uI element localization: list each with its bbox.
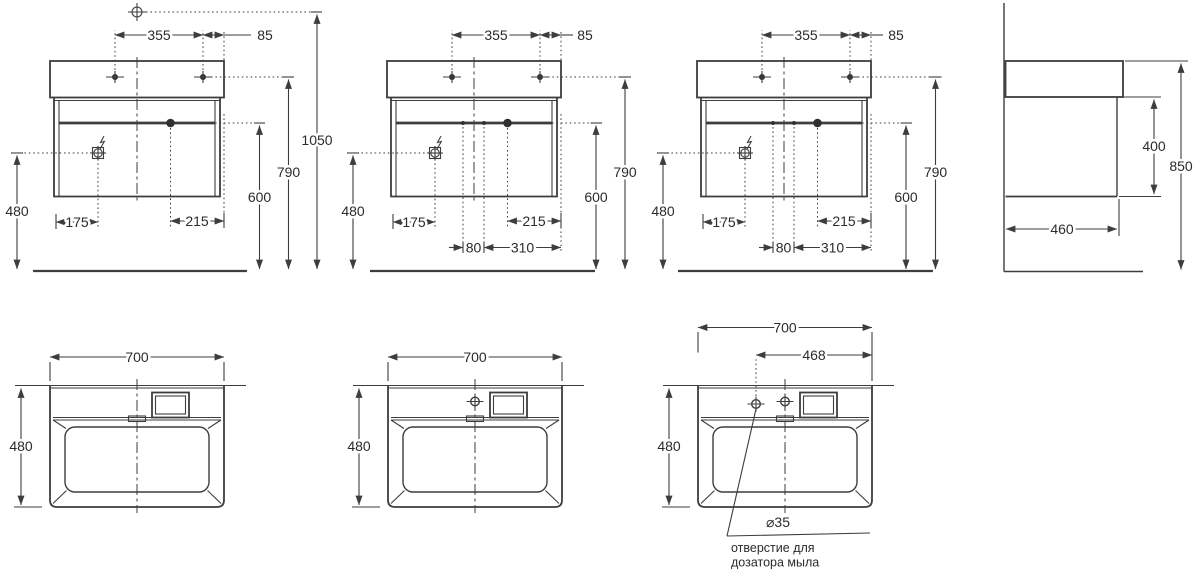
dim-label-drain-offset: 215 <box>832 213 856 229</box>
dim-label-faucet-span: 355 <box>794 27 818 43</box>
dim-label-outlet-height: 480 <box>5 203 29 219</box>
soap-note-line-1: отверстие для <box>731 541 815 555</box>
dim-label-drain-offset: 215 <box>185 213 209 229</box>
dim-label-faucet-height: 790 <box>613 164 637 180</box>
dim-label-hole-to-edge: 310 <box>511 240 535 256</box>
top-view-3: 700 468 480 ⌀35 отверстие для дозатора м… <box>657 320 894 569</box>
soap-note-line-2: дозатора мыла <box>731 556 819 569</box>
front-view-3: 355 85 790 600 480 175 215 80 310 <box>651 27 947 271</box>
dim-label-depth: 480 <box>347 438 371 454</box>
extra-hole-dot <box>482 121 486 125</box>
dim-label-width: 700 <box>773 320 797 336</box>
dim-label-faucet-span: 355 <box>484 27 508 43</box>
vanity-dimension-drawing: 355 85 1050 790 600 480 175 215 355 <box>0 0 1194 569</box>
dim-label-drawer-line-height: 600 <box>894 189 918 205</box>
front-view-2: 355 85 790 600 480 175 215 80 310 <box>341 27 637 271</box>
dim-label-hole-span: 80 <box>466 240 482 256</box>
side-view: 400 850 460 <box>1004 3 1193 272</box>
dim-label-faucet-to-edge: 85 <box>888 27 904 43</box>
tap-hole-icon <box>467 394 484 409</box>
dim-label-faucet-to-edge: 85 <box>257 27 273 43</box>
dim-label-faucet-to-edge: 85 <box>577 27 593 43</box>
dim-label-depth: 460 <box>1050 221 1074 237</box>
dim-label-width: 700 <box>125 349 149 365</box>
dim-label-hole-to-edge: 310 <box>821 240 845 256</box>
dim-label-soap-hole-to-edge: 468 <box>802 347 826 363</box>
dim-label-hole-span: 80 <box>776 240 792 256</box>
dim-label-faucet-height: 790 <box>924 164 948 180</box>
datum-point-icon <box>128 3 146 21</box>
front-view-1: 355 85 1050 790 600 480 175 215 <box>5 3 332 271</box>
dim-label-soap-hole-diameter: ⌀35 <box>766 514 790 530</box>
extra-hole-dot <box>771 121 775 125</box>
washbasin-top-shell <box>35 379 246 513</box>
drawing-canvas: 355 85 1050 790 600 480 175 215 355 <box>0 0 1194 569</box>
washbasin-side <box>1006 61 1124 97</box>
dim-label-total-height: 850 <box>1169 158 1193 174</box>
dim-label-outlet-offset: 175 <box>712 214 736 230</box>
tap-hole-icon <box>777 394 794 409</box>
dim-label-outlet-offset: 175 <box>65 214 89 230</box>
dim-label-datum-height: 1050 <box>301 132 332 148</box>
dim-label-width: 700 <box>463 349 487 365</box>
top-view-1: 700 480 <box>9 349 246 513</box>
leader-line <box>727 409 756 536</box>
dim-label-depth: 480 <box>657 438 681 454</box>
dim-label-faucet-span: 355 <box>147 27 171 43</box>
dim-label-drain-offset: 215 <box>522 213 546 229</box>
vanity-front-shell <box>22 30 286 228</box>
dim-label-depth: 480 <box>9 438 33 454</box>
dim-label-outlet-offset: 175 <box>402 214 426 230</box>
dim-label-drawer-line-height: 600 <box>248 189 272 205</box>
dim-label-drawer-line-height: 600 <box>584 189 608 205</box>
dim-label-cabinet-height: 400 <box>1142 138 1166 154</box>
dim-label-outlet-height: 480 <box>341 203 365 219</box>
dim-label-faucet-height: 790 <box>277 164 301 180</box>
leader-underline <box>727 533 870 536</box>
top-view-2: 700 480 <box>347 349 584 513</box>
dim-label-outlet-height: 480 <box>651 203 675 219</box>
extra-hole-dot <box>461 121 465 125</box>
extra-hole-dot <box>792 121 796 125</box>
